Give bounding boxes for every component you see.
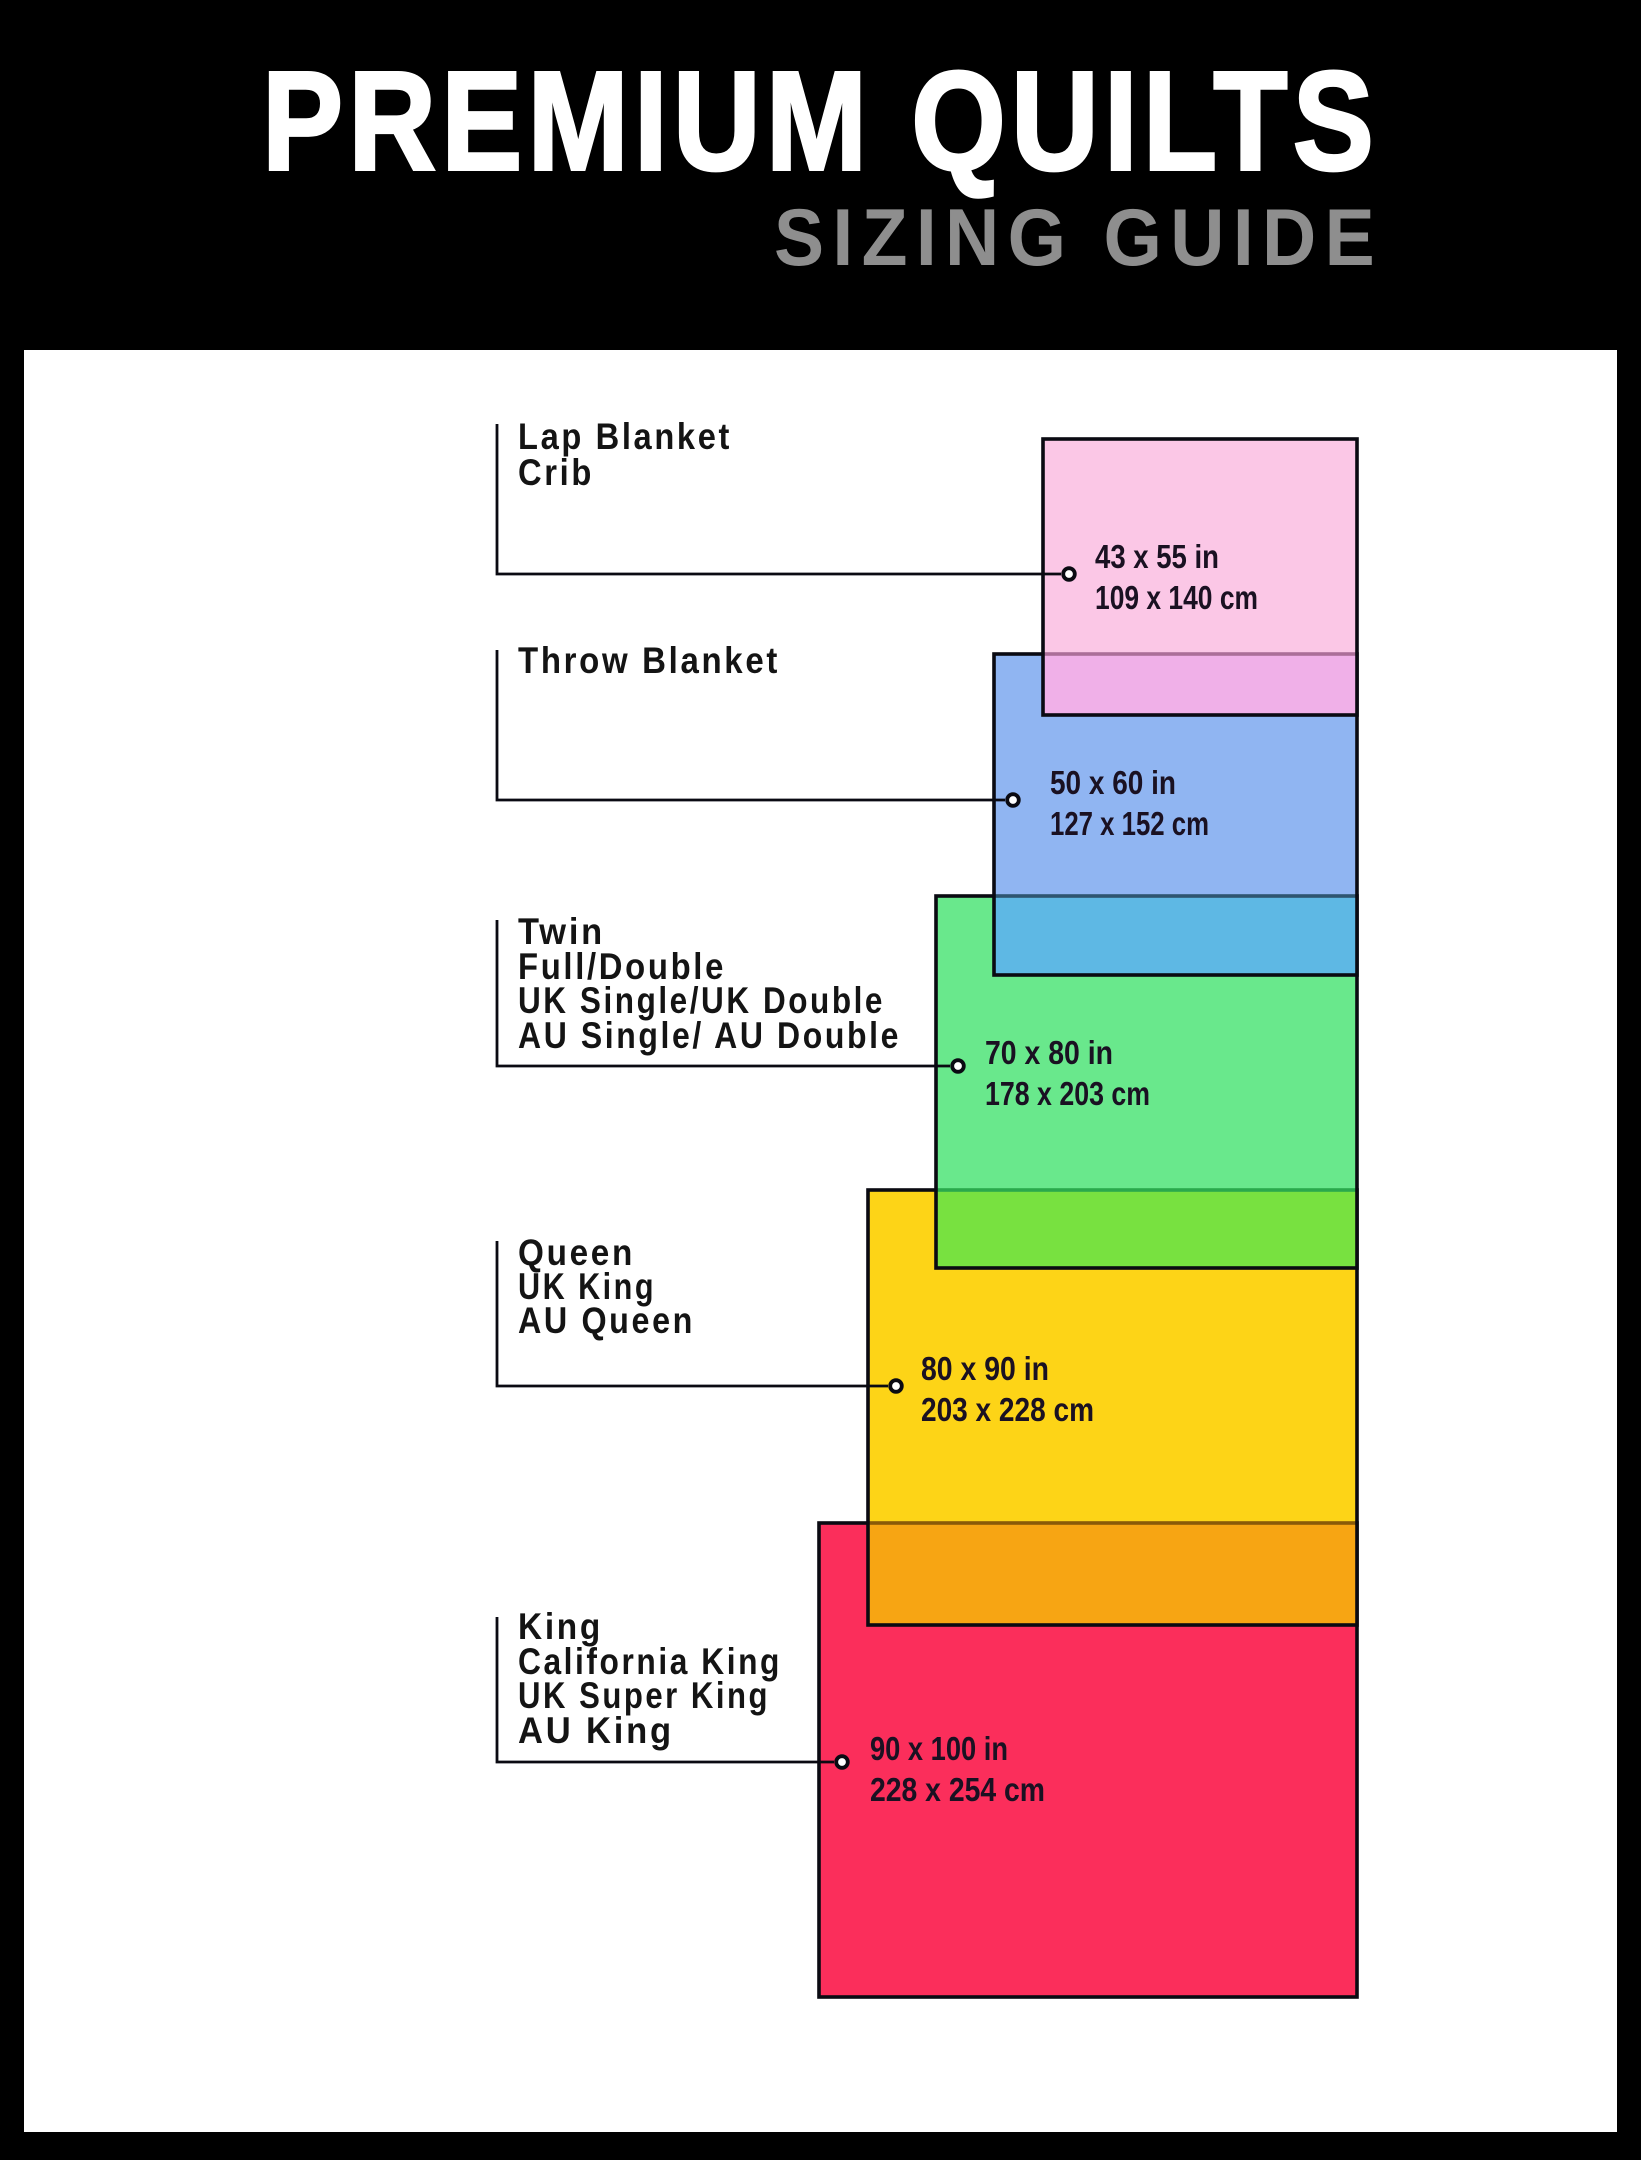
- svg-text:70 x 80 in: 70 x 80 in: [985, 1034, 1113, 1071]
- svg-text:Throw Blanket: Throw Blanket: [518, 640, 780, 681]
- svg-text:AU Single/ AU Double: AU Single/ AU Double: [518, 1015, 901, 1056]
- svg-text:127 x 152 cm: 127 x 152 cm: [1050, 805, 1209, 842]
- svg-text:178 x 203 cm: 178 x 203 cm: [985, 1075, 1150, 1112]
- svg-text:PREMIUM QUILTS: PREMIUM QUILTS: [262, 42, 1379, 200]
- svg-text:Crib: Crib: [518, 452, 594, 493]
- svg-text:203 x 228 cm: 203 x 228 cm: [921, 1391, 1094, 1428]
- svg-text:228 x 254 cm: 228 x 254 cm: [870, 1771, 1045, 1808]
- svg-text:80 x 90 in: 80 x 90 in: [921, 1350, 1049, 1387]
- svg-text:AU Queen: AU Queen: [518, 1300, 695, 1341]
- svg-text:SIZING GUIDE: SIZING GUIDE: [774, 193, 1383, 283]
- svg-text:Lap Blanket: Lap Blanket: [518, 416, 732, 457]
- svg-text:109 x 140 cm: 109 x 140 cm: [1095, 579, 1258, 616]
- svg-text:AU King: AU King: [518, 1710, 674, 1751]
- svg-text:43 x 55 in: 43 x 55 in: [1095, 538, 1219, 575]
- svg-text:90 x 100 in: 90 x 100 in: [870, 1730, 1008, 1767]
- svg-text:50 x 60 in: 50 x 60 in: [1050, 764, 1176, 801]
